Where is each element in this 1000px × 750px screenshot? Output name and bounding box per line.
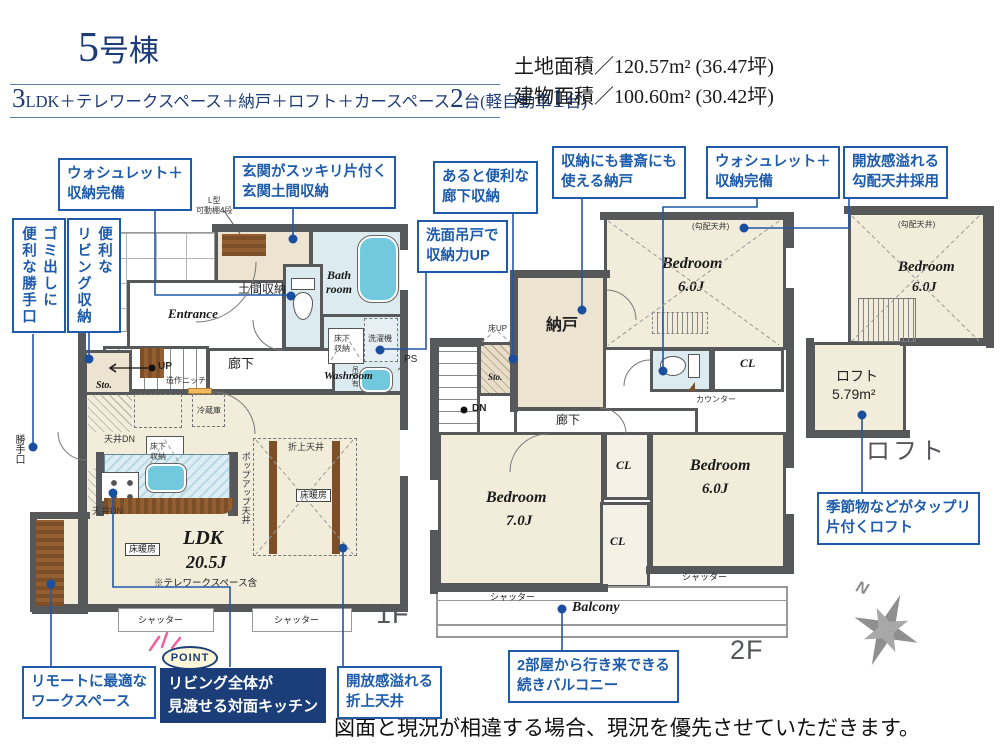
loft-name-label: ロフト xyxy=(836,368,878,385)
yukashita-line2: 収納 xyxy=(334,344,350,353)
callout-col: 便利な xyxy=(94,226,115,325)
sloped-ceiling-label-loft: (勾配天井) xyxy=(898,220,935,230)
closet-b-label: CL xyxy=(610,534,625,548)
yukashita-line2: 収納 xyxy=(150,452,166,461)
corridor-1f xyxy=(207,348,335,392)
ceiling-beam-left xyxy=(269,441,277,554)
wall xyxy=(430,338,438,594)
floor-2f-label: 2F xyxy=(730,634,764,666)
bedroom6u-label: Bedroom xyxy=(662,254,722,273)
callout-washlet-2f: ウォシュレット＋収納完備 xyxy=(706,146,840,199)
window xyxy=(430,478,438,532)
header-rule-top xyxy=(10,84,500,85)
loft-stairs xyxy=(858,298,916,342)
shutter-label-4: シャッター xyxy=(682,572,727,583)
callout-koubai-tenjo: 開放感溢れる勾配天井採用 xyxy=(843,146,948,199)
sparkle xyxy=(150,637,159,650)
spec-num: 2 xyxy=(450,83,464,113)
bath-line2: room xyxy=(326,282,352,296)
callout-line: 玄関土間収納 xyxy=(242,182,387,202)
floor-plan-page: 5号棟 3LDK＋テレワークスペース＋納戸＋ロフト＋カースペース2台(軽自動車1… xyxy=(0,0,1000,750)
callout-line: 折上天井 xyxy=(346,692,433,712)
callout-line: 使える納戸 xyxy=(561,172,677,192)
coffered-ceiling-label: 折上天井 xyxy=(288,442,324,453)
bathtub xyxy=(358,236,398,302)
callout-col: 便利な勝手口 xyxy=(18,226,39,325)
bedroom7-size: 7.0J xyxy=(506,512,532,530)
callout-col: ゴミ出しに xyxy=(39,226,60,325)
loft-bedroom-label: Bedroom xyxy=(898,258,955,276)
building-number: 5 xyxy=(78,25,99,71)
wall xyxy=(78,392,86,612)
ceiling-beam-right xyxy=(332,441,340,554)
sparkle xyxy=(162,633,167,647)
wall xyxy=(510,270,610,278)
nando-room xyxy=(514,274,606,410)
callout-balcony: 2部屋から行き来できる続きバルコニー xyxy=(508,650,679,703)
closet-a-label: CL xyxy=(616,458,631,472)
ceiling-down-label-2: 天井DN xyxy=(92,506,123,517)
callout-kitchen-point: リビング全体が見渡せる対面キッチン xyxy=(160,668,326,723)
closet-top-label: CL xyxy=(740,356,755,370)
loft-bedroom-size: 6.0J xyxy=(912,280,937,297)
header-rule-bottom xyxy=(10,117,500,118)
floor-heating-label-1: 床暖房 xyxy=(296,489,331,502)
nando-label: 納戸 xyxy=(546,316,578,335)
spec-text: LDK＋テレワークスペース＋納戸＋ロフト＋カースペース xyxy=(26,92,451,111)
north-label: N xyxy=(853,579,870,600)
callout-line: 開放感溢れる xyxy=(852,152,939,172)
building-area: 建物面積／100.60m² (30.42坪) xyxy=(514,80,774,109)
underfloor-label-ldk: 床下収納 xyxy=(150,442,166,461)
underfloor-label-washroom: 床下収納 xyxy=(334,334,350,353)
counter-mark xyxy=(688,382,695,391)
building-suffix: 号棟 xyxy=(99,35,159,68)
shutter-label-1: シャッター xyxy=(138,615,183,626)
ceiling-down-hatch-1 xyxy=(88,394,132,432)
balcony-rail-line2 xyxy=(438,624,786,626)
callout-rouka-shuno: あると便利な廊下収納 xyxy=(433,161,538,214)
shelf-note: L型可動棚4段 xyxy=(196,196,232,215)
counter-label: カウンター xyxy=(696,395,736,405)
land-area: 土地面積／120.57m² (36.47坪) xyxy=(514,50,774,79)
callout-nando: 収納にも書斎にも使える納戸 xyxy=(552,146,686,199)
yukashita-line1: 床下 xyxy=(150,442,166,451)
spec-num: 3 xyxy=(12,83,26,113)
callout-line: 玄関がスッキリ片付く xyxy=(242,162,387,182)
callout-line: 収納にも書斎にも xyxy=(561,152,677,172)
window xyxy=(400,428,408,478)
wall xyxy=(400,392,408,612)
wall xyxy=(600,212,792,220)
callout-line: ウォシュレット＋ xyxy=(715,152,831,172)
callout-line: あると便利な xyxy=(442,167,529,187)
callout-col: リビング収納 xyxy=(73,226,94,325)
ceiling-down-label-1: 天井DN xyxy=(104,434,135,445)
door-arc xyxy=(624,360,650,386)
callout-gomi: ゴミ出しに便利な勝手口 xyxy=(12,218,66,333)
wall xyxy=(844,206,992,214)
shoe-shelf xyxy=(222,234,266,256)
loft-area-label: 5.79m² xyxy=(832,386,876,403)
callout-line: 続きバルコニー xyxy=(517,676,670,696)
callout-line: 季節物などがタップリ xyxy=(826,498,971,518)
layout-spec: 3LDK＋テレワークスペース＋納戸＋ロフト＋カースペース2台(軽自動車1台) xyxy=(12,88,587,112)
kitchen-sink xyxy=(146,464,186,492)
callout-oriage: 開放感溢れる折上天井 xyxy=(337,666,442,719)
compass-star-cardinal xyxy=(840,582,932,678)
bedroom-7j xyxy=(438,432,604,586)
compass-star-diagonal xyxy=(864,608,908,652)
floor-up-label: 床UP xyxy=(488,324,507,334)
bedroom-6j-lower xyxy=(650,432,786,570)
compass-rose xyxy=(840,582,932,678)
storage-label-2f: Sto. xyxy=(488,372,502,383)
callout-line: 見渡せる対面キッチン xyxy=(168,696,318,719)
window xyxy=(786,246,794,290)
callout-genkan-doma: 玄関がスッキリ片付く玄関土間収納 xyxy=(233,156,396,209)
fridge-label: 冷蔵庫 xyxy=(197,406,221,416)
wall xyxy=(510,270,518,412)
callout-remote: リモートに最適なワークスペース xyxy=(22,666,156,719)
callout-living-shuno: 便利なリビング収納 xyxy=(67,218,121,333)
floor-1f-label: 1F xyxy=(376,598,410,630)
balcony-label: Balcony xyxy=(572,600,619,617)
shelf-note-line2: 可動棚4段 xyxy=(196,206,232,215)
stairs-up-label: UP xyxy=(158,361,172,373)
wall xyxy=(806,338,814,438)
wall xyxy=(30,512,90,519)
workspace-desk xyxy=(36,520,64,606)
ldk-label: LDK xyxy=(183,526,223,550)
wall xyxy=(432,338,484,346)
telework-note: ※テレワークスペース含 xyxy=(154,578,257,589)
callout-washlet-1f: ウォシュレット＋収納完備 xyxy=(58,158,192,211)
corridor-label-1f: 廊下 xyxy=(228,356,254,372)
callout-line: リビング全体が xyxy=(168,673,318,696)
ps-label: PS xyxy=(404,354,417,366)
niche-shelf xyxy=(188,388,212,394)
toilet-tank-1f xyxy=(291,278,315,290)
washing-machine-label: 洗濯機 xyxy=(368,334,392,344)
bedroom6u-size: 6.0J xyxy=(678,278,704,296)
callout-line: 開放感溢れる xyxy=(346,672,433,692)
loft-ladder-2f xyxy=(652,312,708,334)
callout-line: 2部屋から行き来できる xyxy=(517,656,670,676)
doma-label: 土間収納 xyxy=(238,282,286,296)
window xyxy=(400,248,408,292)
callout-line: 洗面吊戸で xyxy=(426,226,499,246)
stairs-down-label: DN xyxy=(472,403,486,415)
callout-line: 勾配天井採用 xyxy=(852,172,939,192)
callout-line: ワークスペース xyxy=(31,692,147,712)
bath-line1: Bath xyxy=(327,268,351,282)
shutter-label-2: シャッター xyxy=(274,615,319,626)
wall xyxy=(432,584,608,592)
niche-label: 造作ニッチ xyxy=(166,376,206,386)
callout-line: ウォシュレット＋ xyxy=(67,164,183,184)
leader-dot xyxy=(29,443,38,452)
shutter-label-3: シャッター xyxy=(490,592,535,603)
washroom-label: Washroom xyxy=(324,370,373,383)
wall xyxy=(806,430,910,438)
callout-line: 廊下収納 xyxy=(442,187,529,207)
shelf-note-line1: L型 xyxy=(208,196,220,205)
storage-label-1f: Sto. xyxy=(96,380,112,392)
kitchen-wood-front xyxy=(104,498,234,514)
callout-loft: 季節物などがタップリ片付くロフト xyxy=(817,492,980,545)
callout-line: 片付くロフト xyxy=(826,518,971,538)
popup-ceiling-label: ポップアップ天井 xyxy=(240,452,251,548)
ldk-size-label: 20.5J xyxy=(186,552,227,574)
sloped-ceiling-label-2f: (勾配天井) xyxy=(692,222,729,232)
entrance-label: Entrance xyxy=(168,306,218,322)
callout-senmen: 洗面吊戸で収納力UP xyxy=(417,220,508,273)
bedroom6l-label: Bedroom xyxy=(690,456,750,475)
bathroom-label: Bathroom xyxy=(326,268,352,297)
loft-caption: ロフト xyxy=(866,438,947,467)
back-door-label: 勝手口 xyxy=(12,434,24,464)
callout-line: 収納力UP xyxy=(426,246,499,266)
callout-line: 収納完備 xyxy=(67,184,183,204)
corridor-label-2f: 廊下 xyxy=(556,413,580,427)
toilet-tank-2f xyxy=(688,354,700,378)
hanging-cupboard-label: 吊戸有 xyxy=(350,366,358,387)
callout-line: 収納完備 xyxy=(715,172,831,192)
bedroom7-label: Bedroom xyxy=(486,488,546,507)
floor-heating-label-2: 床暖房 xyxy=(125,543,160,556)
yukashita-line1: 床下 xyxy=(334,334,350,343)
bedroom6l-size: 6.0J xyxy=(702,480,728,498)
wall xyxy=(212,224,408,232)
point-badge: POINT xyxy=(162,646,218,670)
closet-dashed-box xyxy=(134,394,182,428)
wall xyxy=(986,206,994,348)
window xyxy=(786,466,794,516)
callout-line: リモートに最適な xyxy=(31,672,147,692)
page-title: 5号棟 xyxy=(78,24,159,72)
